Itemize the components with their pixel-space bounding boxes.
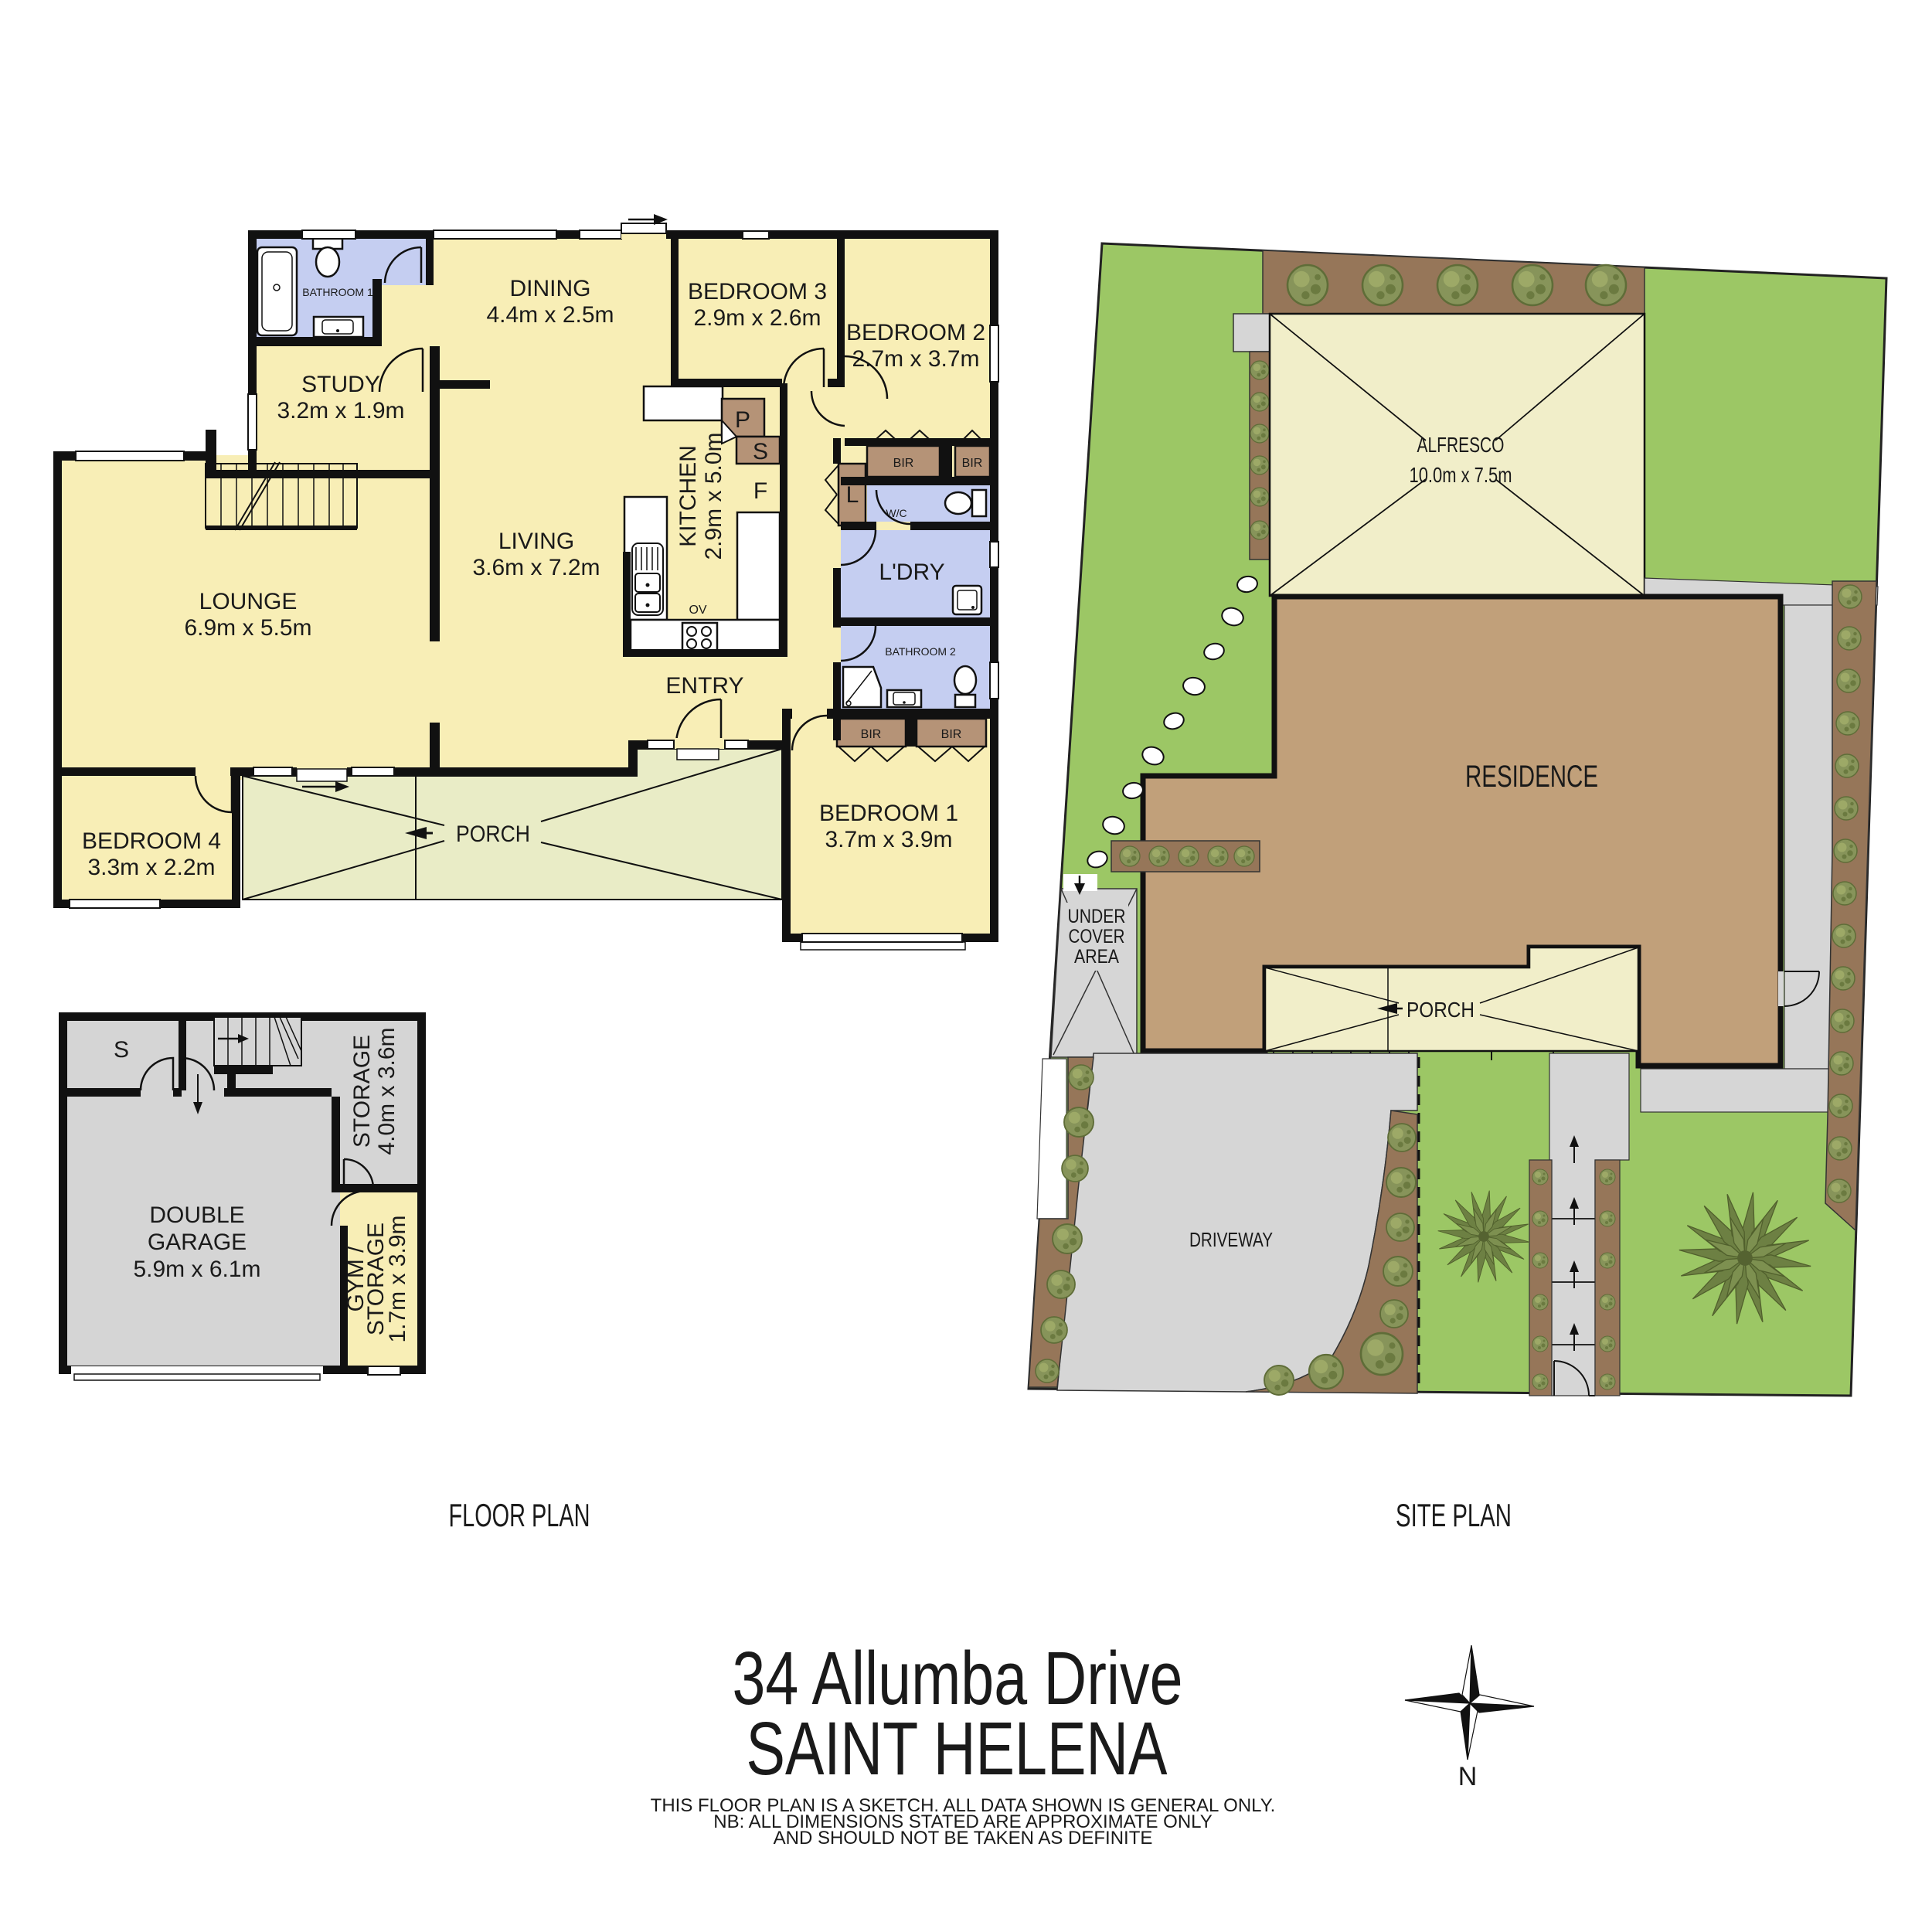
svg-text:BIR: BIR bbox=[861, 728, 882, 741]
svg-text:2.9m x 5.0m: 2.9m x 5.0m bbox=[701, 432, 726, 560]
svg-text:PORCH: PORCH bbox=[456, 821, 530, 847]
svg-text:BEDROOM 3: BEDROOM 3 bbox=[688, 279, 827, 304]
svg-text:6.9m x 5.5m: 6.9m x 5.5m bbox=[184, 615, 311, 641]
svg-text:AND SHOULD NOT BE TAKEN AS DEF: AND SHOULD NOT BE TAKEN AS DEFINITE bbox=[774, 1828, 1153, 1849]
svg-text:3.7m x 3.9m: 3.7m x 3.9m bbox=[825, 827, 952, 852]
svg-text:N: N bbox=[1458, 1762, 1478, 1791]
svg-text:SAINT HELENA: SAINT HELENA bbox=[747, 1706, 1168, 1791]
svg-text:5.9m x 6.1m: 5.9m x 6.1m bbox=[133, 1257, 260, 1282]
svg-text:L: L bbox=[846, 482, 859, 508]
svg-text:BIR: BIR bbox=[941, 728, 962, 741]
svg-text:OV: OV bbox=[689, 604, 706, 617]
svg-text:ENTRY: ENTRY bbox=[665, 673, 743, 699]
svg-text:KITCHEN: KITCHEN bbox=[675, 445, 701, 547]
svg-text:BEDROOM 2: BEDROOM 2 bbox=[846, 320, 985, 345]
svg-text:RESIDENCE: RESIDENCE bbox=[1465, 760, 1598, 794]
svg-text:DINING: DINING bbox=[510, 276, 591, 301]
svg-text:BIR: BIR bbox=[893, 457, 914, 470]
svg-text:DOUBLE: DOUBLE bbox=[149, 1202, 244, 1228]
svg-text:LIVING: LIVING bbox=[498, 529, 574, 554]
svg-text:GARAGE: GARAGE bbox=[148, 1230, 247, 1255]
svg-text:3.3m x 2.2m: 3.3m x 2.2m bbox=[87, 855, 215, 880]
svg-text:BIR: BIR bbox=[962, 457, 983, 470]
svg-text:BATHROOM 1: BATHROOM 1 bbox=[302, 286, 373, 298]
svg-text:ALFRESCO: ALFRESCO bbox=[1417, 433, 1505, 457]
svg-text:STUDY: STUDY bbox=[301, 372, 380, 397]
svg-text:1.7m x 3.9m: 1.7m x 3.9m bbox=[385, 1215, 410, 1342]
svg-text:LOUNGE: LOUNGE bbox=[199, 589, 298, 614]
svg-text:STORAGE: STORAGE bbox=[349, 1035, 375, 1148]
svg-text:2.9m x 2.6m: 2.9m x 2.6m bbox=[693, 305, 821, 331]
svg-text:BEDROOM 4: BEDROOM 4 bbox=[82, 828, 221, 854]
svg-text:L'DRY: L'DRY bbox=[879, 560, 944, 585]
svg-text:UNDER: UNDER bbox=[1068, 906, 1126, 927]
svg-text:PORCH: PORCH bbox=[1406, 998, 1475, 1022]
svg-text:4.4m x 2.5m: 4.4m x 2.5m bbox=[486, 302, 614, 328]
svg-text:10.0m x 7.5m: 10.0m x 7.5m bbox=[1410, 463, 1512, 487]
svg-text:BATHROOM 2: BATHROOM 2 bbox=[885, 645, 956, 658]
svg-text:S: S bbox=[753, 439, 768, 464]
svg-text:DRIVEWAY: DRIVEWAY bbox=[1189, 1228, 1273, 1251]
svg-text:2.7m x 3.7m: 2.7m x 3.7m bbox=[852, 346, 979, 372]
svg-text:SITE PLAN: SITE PLAN bbox=[1396, 1497, 1512, 1533]
svg-text:3.2m x 1.9m: 3.2m x 1.9m bbox=[277, 398, 404, 423]
svg-text:P: P bbox=[735, 407, 750, 433]
svg-text:COVER: COVER bbox=[1069, 926, 1125, 947]
svg-text:F: F bbox=[753, 478, 767, 504]
svg-text:FLOOR PLAN: FLOOR PLAN bbox=[449, 1497, 590, 1533]
svg-text:4.0m x 3.6m: 4.0m x 3.6m bbox=[374, 1027, 400, 1155]
svg-text:AREA: AREA bbox=[1074, 946, 1119, 968]
svg-text:3.6m x 7.2m: 3.6m x 7.2m bbox=[472, 555, 600, 580]
svg-text:S: S bbox=[114, 1037, 129, 1063]
svg-text:BEDROOM 1: BEDROOM 1 bbox=[819, 801, 958, 826]
